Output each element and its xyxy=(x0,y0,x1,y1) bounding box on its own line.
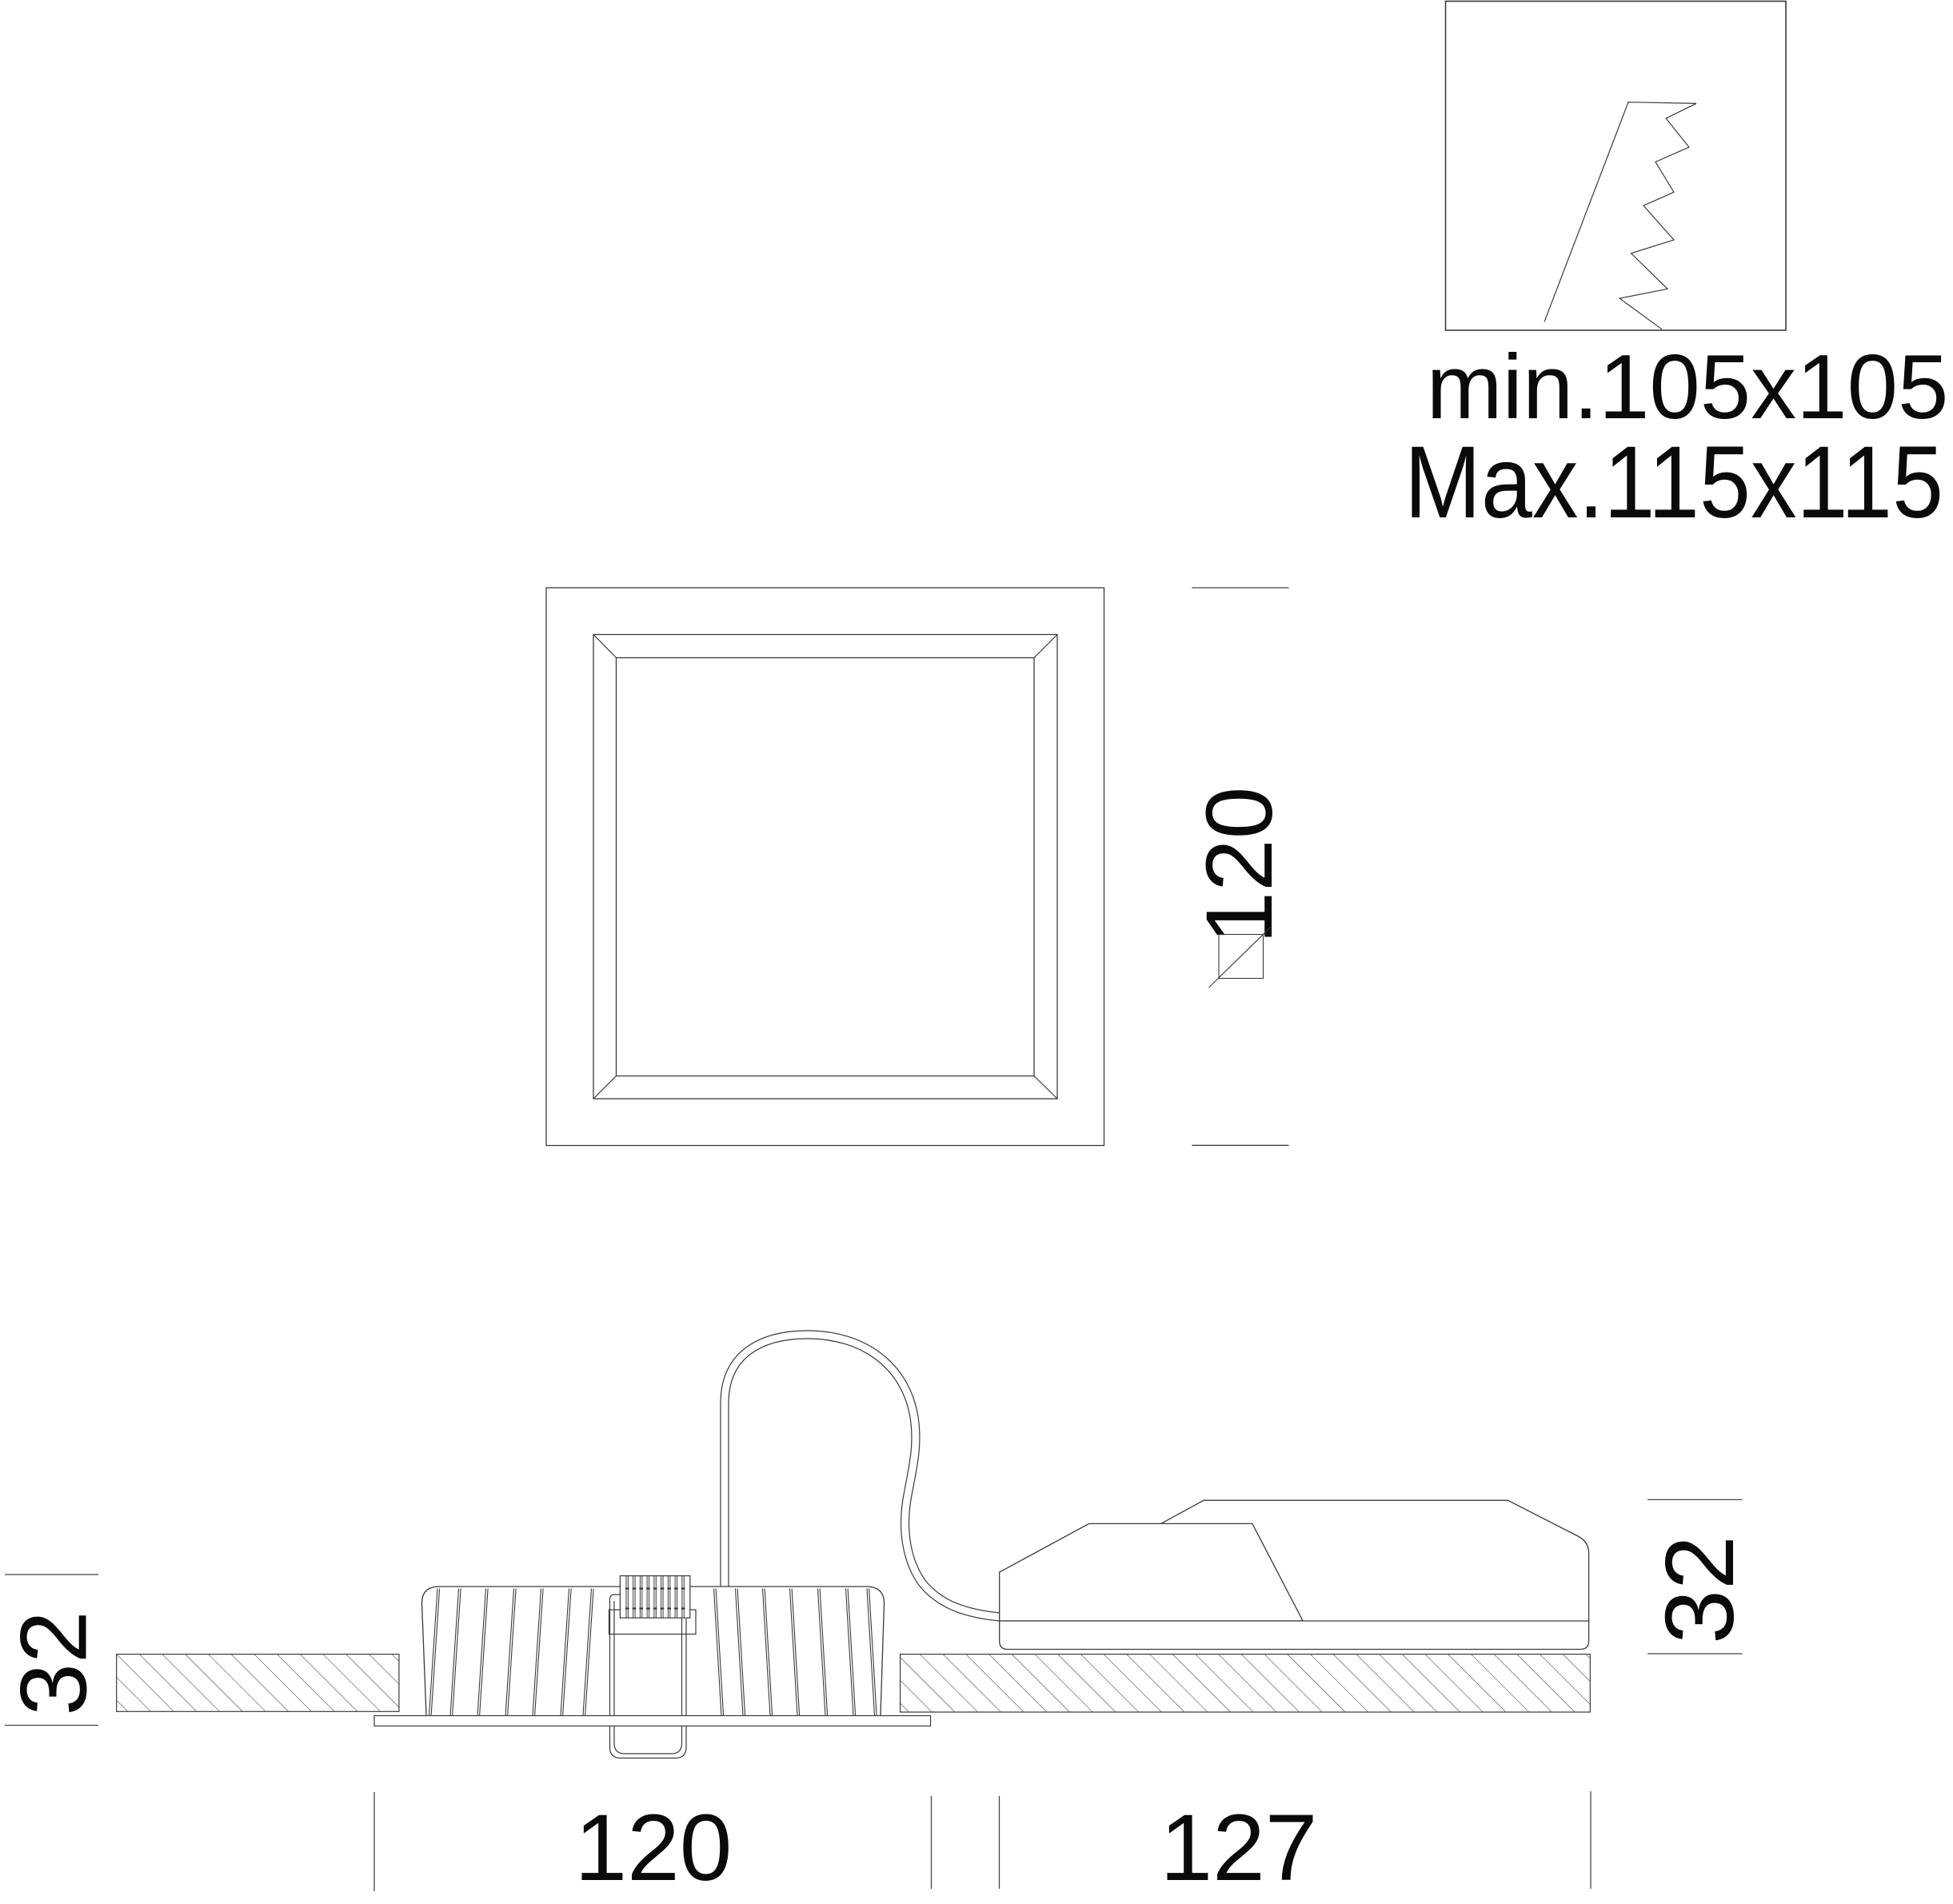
svg-text:127: 127 xyxy=(1160,1795,1318,1901)
svg-text:120: 120 xyxy=(575,1795,733,1901)
svg-text:min.105x105: min.105x105 xyxy=(1427,337,1949,438)
svg-text:32: 32 xyxy=(2,1611,107,1715)
svg-text:Max.115x115: Max.115x115 xyxy=(1404,425,1943,540)
svg-text:32: 32 xyxy=(1645,1535,1754,1644)
svg-text:120: 120 xyxy=(1187,787,1292,944)
